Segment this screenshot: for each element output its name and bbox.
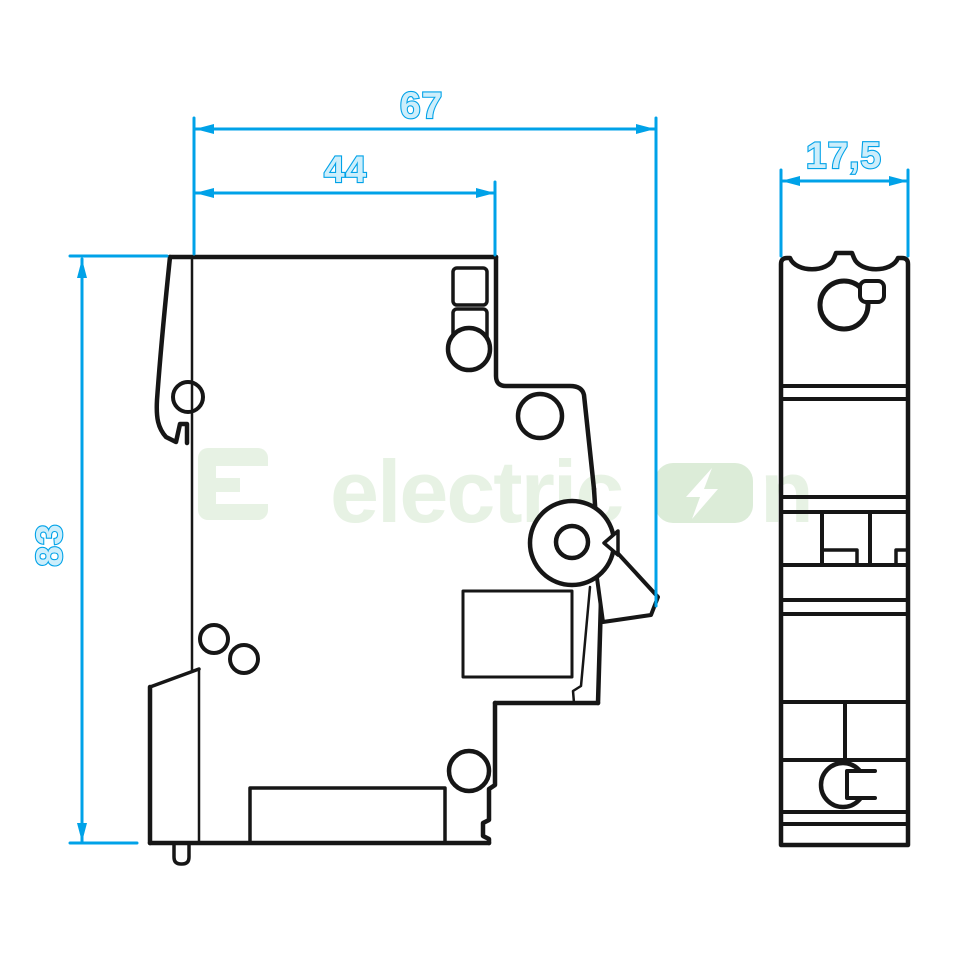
- dimension-width-upper: 44: [195, 149, 495, 255]
- arrowhead-left: [195, 188, 214, 198]
- base-terminal-block: [250, 788, 445, 843]
- dimension-label: 44: [324, 149, 367, 190]
- label-panel: [463, 591, 572, 677]
- arrowhead-right: [476, 188, 495, 198]
- dimension-label: 83: [29, 523, 70, 566]
- arrowhead-right: [636, 124, 655, 134]
- arrowhead-left: [195, 124, 214, 134]
- bottom-clip-tab: [174, 844, 189, 864]
- foot-slant-edge: [150, 669, 199, 687]
- terminal-screw-bottom: [449, 751, 489, 791]
- clip-pivot-hole: [173, 382, 203, 412]
- side-view: [150, 257, 658, 864]
- front-view: [781, 253, 908, 845]
- front-screw-tab: [860, 281, 884, 302]
- terminal-screw-top: [448, 328, 490, 370]
- dimension-height: 83: [29, 256, 167, 843]
- arrowhead-top: [77, 259, 87, 278]
- dimension-depth: 17,5: [781, 135, 908, 256]
- arrowhead-left: [781, 176, 800, 186]
- watermark-o-badge: [655, 463, 753, 523]
- front-recess-window: [822, 512, 908, 760]
- dimension-label: 17,5: [806, 135, 882, 176]
- rivet-hole-2: [230, 645, 258, 673]
- rivet-hole-1: [200, 625, 228, 653]
- watermark-text-suffix: n: [760, 442, 812, 541]
- terminal-screw-upper-right: [518, 394, 562, 438]
- side-inner-contour-line: [573, 587, 590, 703]
- watermark: electric n: [198, 442, 812, 541]
- electricon-logo: [198, 448, 268, 520]
- front-bottom-screw: [821, 763, 875, 807]
- terminal-slot-upper: [453, 268, 487, 305]
- arrowhead-bottom: [77, 823, 87, 842]
- mcb-dimension-drawing: electric n: [0, 0, 980, 980]
- din-clip-flange: [157, 257, 187, 443]
- toggle-pivot-hole: [556, 526, 588, 558]
- dimension-label: 67: [400, 85, 443, 126]
- drawing-canvas: electric n: [0, 0, 980, 980]
- arrowhead-right: [889, 176, 908, 186]
